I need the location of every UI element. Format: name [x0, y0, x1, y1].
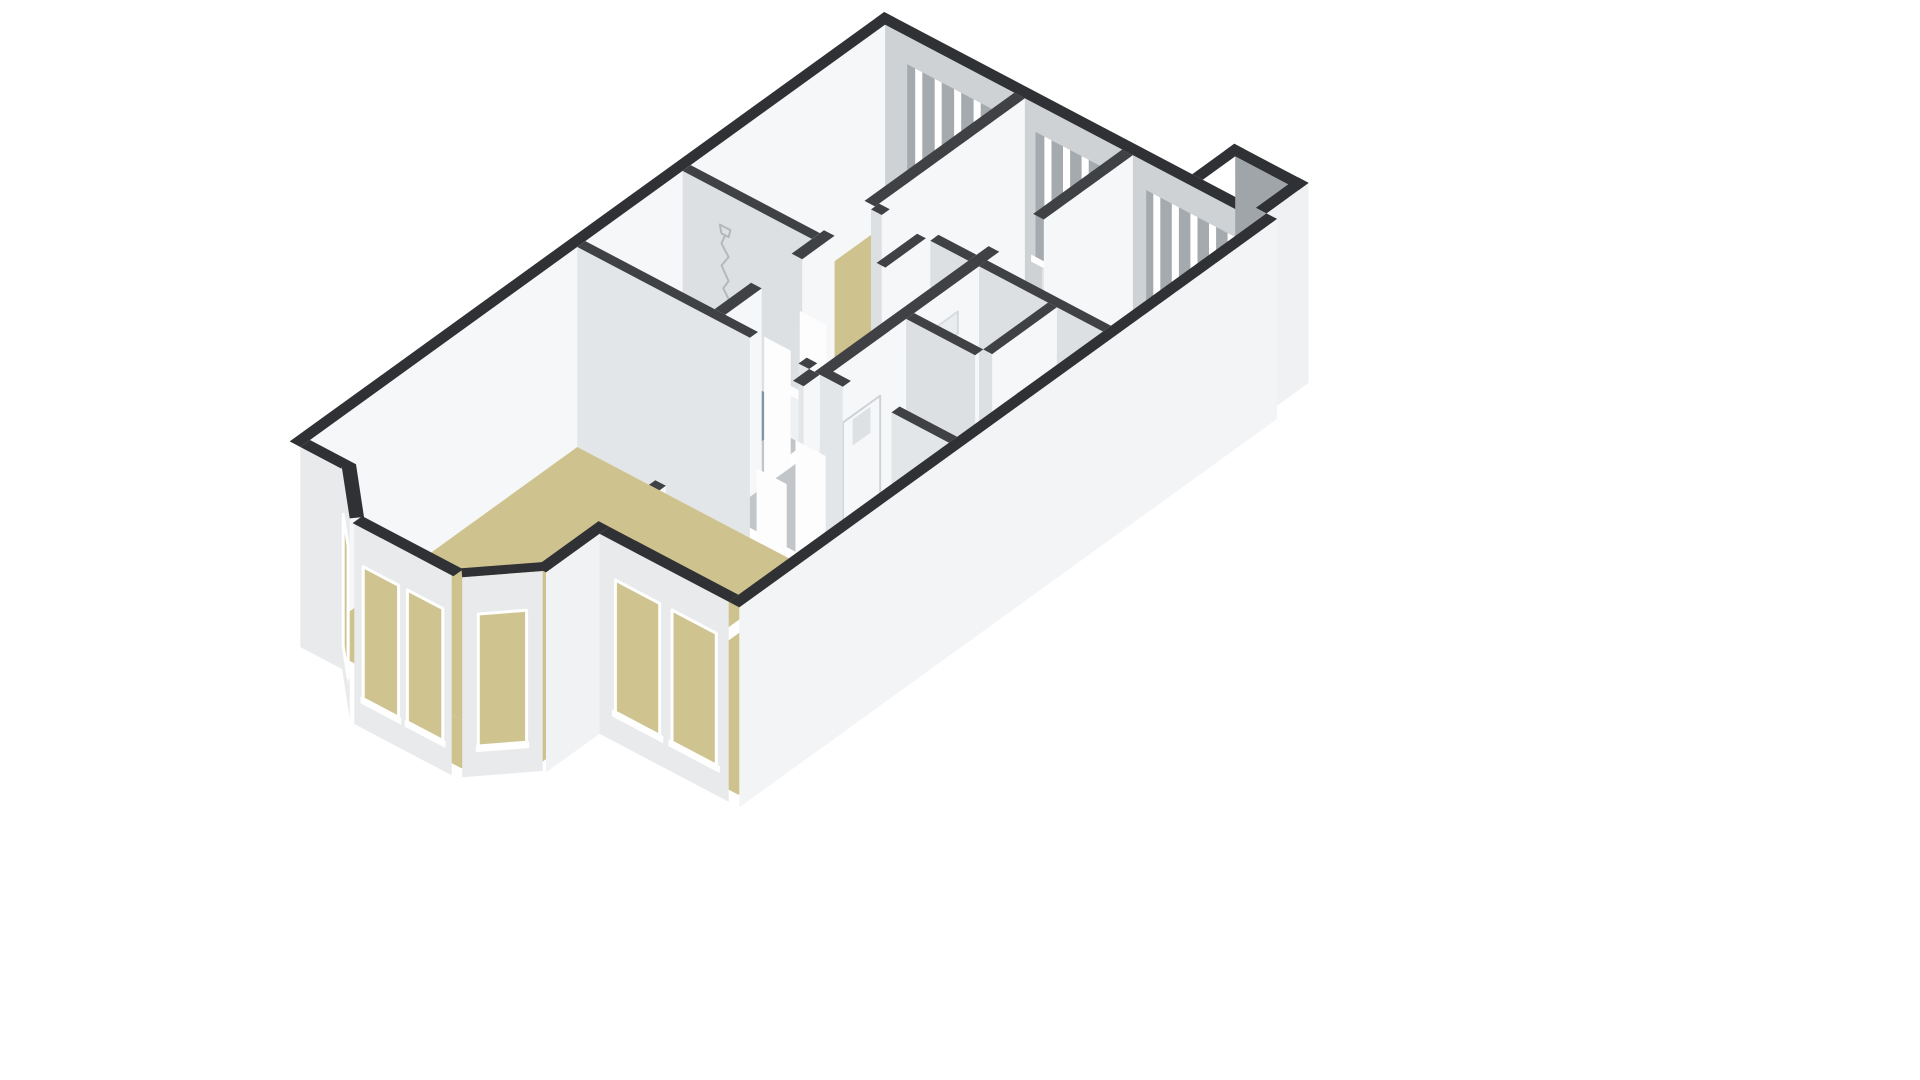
bay-front-window: [363, 567, 398, 718]
bay-cant-window: [478, 610, 526, 746]
front-bedroom-window: [672, 610, 716, 765]
floorplan-svg: [0, 0, 1920, 1080]
front-bedroom-window: [615, 580, 659, 735]
page-canvas: [0, 0, 1920, 1080]
bay-front-window: [407, 590, 442, 741]
bay-side-outer-face: [300, 447, 346, 671]
